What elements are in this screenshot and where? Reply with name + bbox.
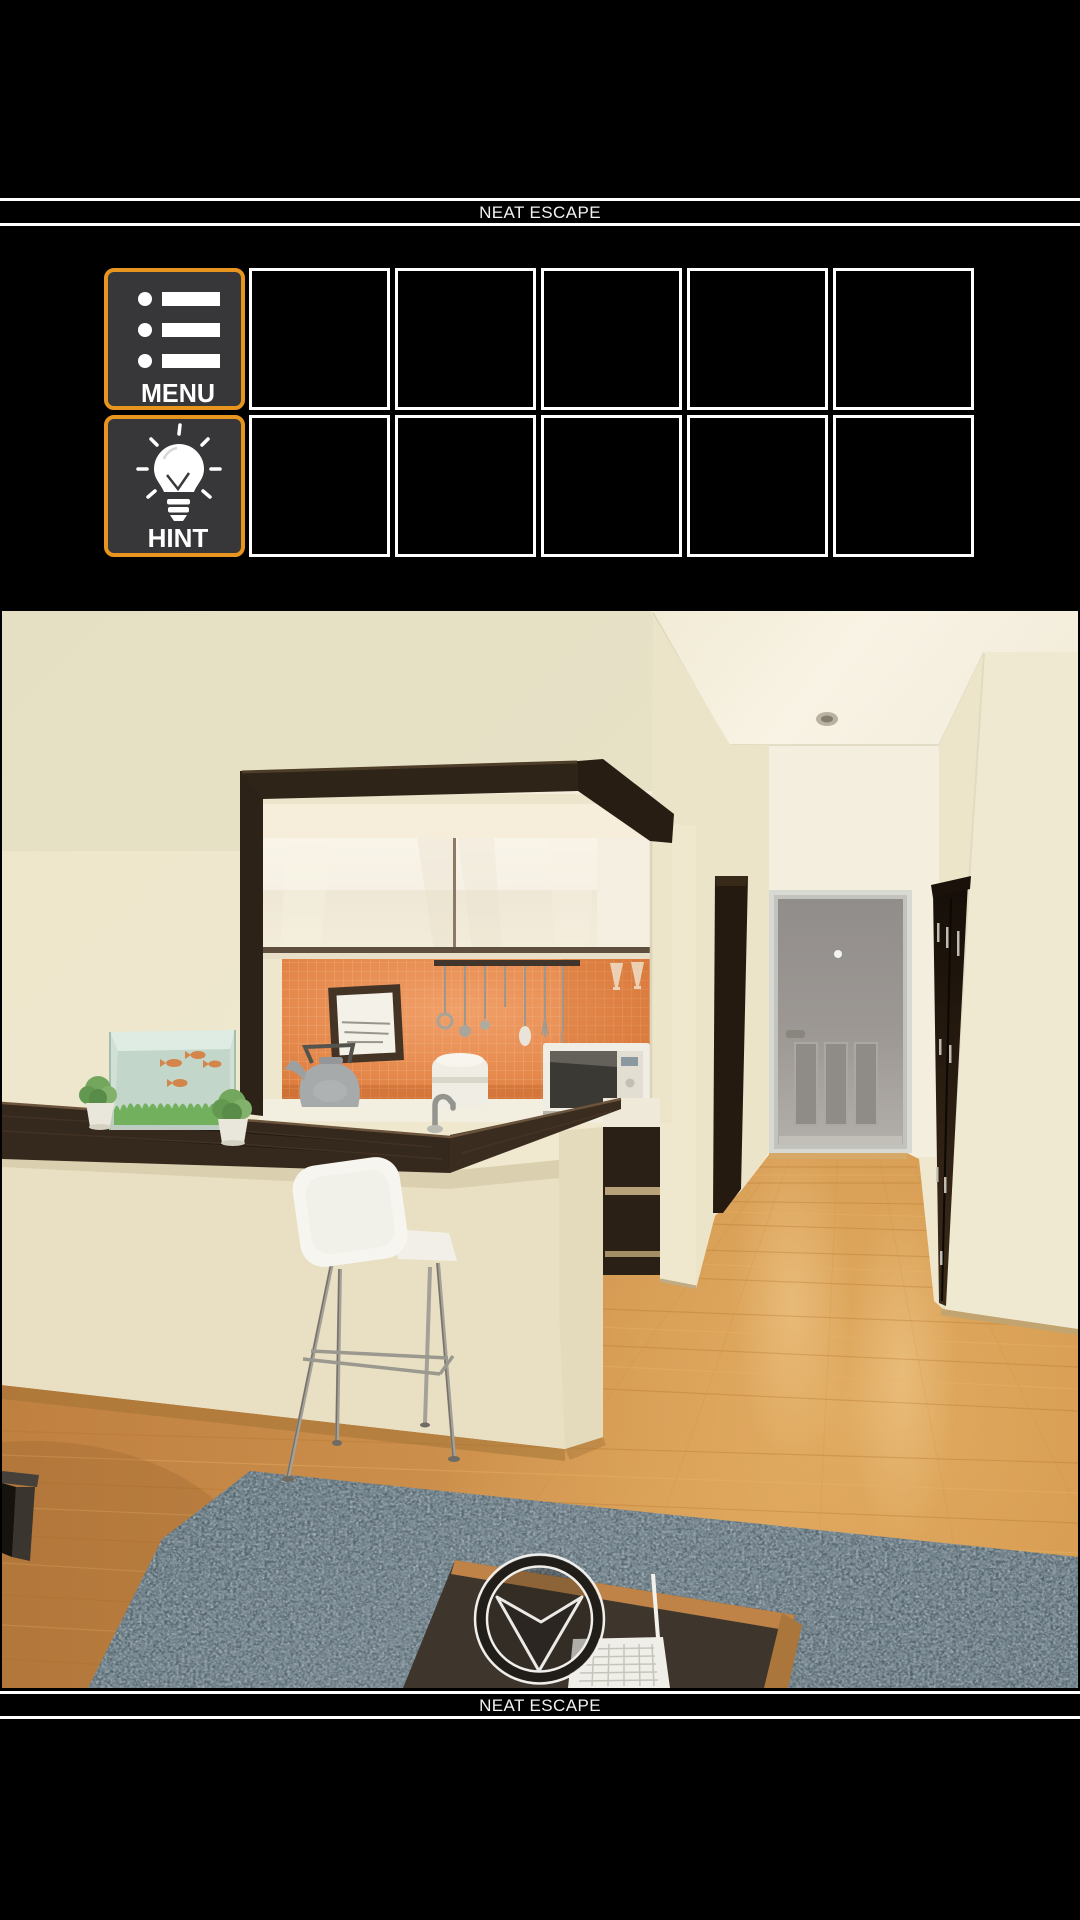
svg-text:MENU: MENU <box>141 378 215 406</box>
svg-text:HINT: HINT <box>148 523 209 553</box>
